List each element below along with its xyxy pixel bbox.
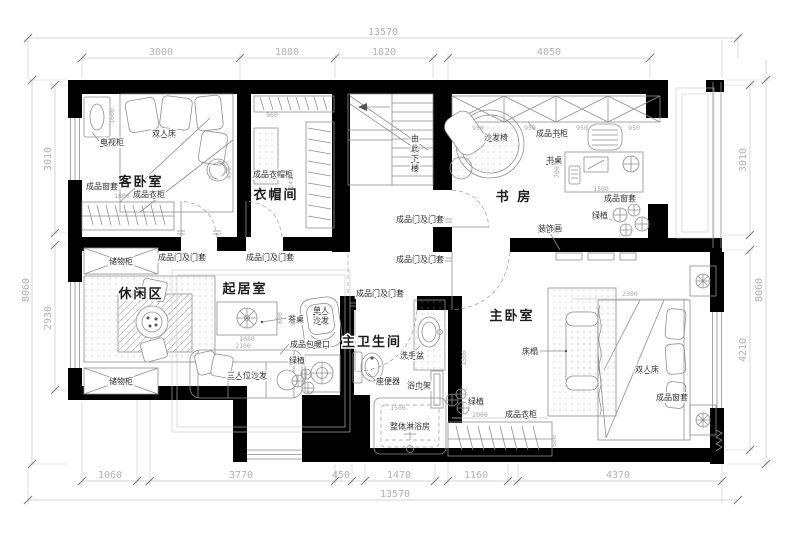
room-label-guest-bedroom: 客卧室 <box>118 174 163 190</box>
label-sofa-chair: 沙发椅 <box>484 132 508 142</box>
decor-paintings <box>556 253 636 260</box>
stair-note-char: 下 <box>411 154 419 163</box>
label-radiator-cover: 成品包暖口 <box>290 339 330 349</box>
wall-cloak-stair <box>332 80 350 252</box>
bay-window-inner <box>682 94 708 232</box>
floor-plan-page: 客卧室衣帽间书 房休闲区起居室主卫生间主卧室 双人床电视柜成品窗套成品衣柜成品衣… <box>0 0 800 559</box>
dims_outer-text: 1060 <box>98 470 122 481</box>
dims_inner-text: 1500 <box>593 185 609 193</box>
door-swing-study <box>452 190 489 227</box>
label-bed-bench: 床榻 <box>522 346 538 356</box>
label-double-bed-master: 双人床 <box>635 364 659 374</box>
label-plant-master: 绿植 <box>468 396 484 406</box>
dim-bottom-overall: 13570 <box>380 489 410 500</box>
label-tv-cabinet: 电视柜 <box>100 137 124 147</box>
dims_inner-text: 2100 <box>235 342 251 350</box>
window-living-bottom <box>247 450 302 459</box>
dims_inner-text: 1800 <box>114 192 130 200</box>
cloak-rack-side <box>306 122 334 228</box>
room-label-leisure-area: 休闲区 <box>117 286 163 302</box>
label-door-bathroom: 成品门及门套 <box>356 288 404 298</box>
label-storage-bottom: 储物柜 <box>109 376 133 386</box>
dims_outer-text: 3010 <box>738 148 749 172</box>
dims_outer-text: 1470 <box>387 470 411 481</box>
dims_outer-text: 4050 <box>537 47 561 58</box>
dims_outer-text: 2930 <box>43 306 54 330</box>
label-three-seat-sofa: 三人位沙发 <box>227 370 267 380</box>
plant-study <box>613 204 649 236</box>
wall-master-north <box>510 238 722 252</box>
dims_inner-text: 450 <box>225 167 233 179</box>
stair-note-char: 此 <box>411 143 419 153</box>
dims_inner-text: 950 <box>576 124 588 132</box>
dims_inner-text: 950 <box>524 124 536 132</box>
tea-table <box>217 302 277 335</box>
wall-study-se <box>648 204 668 238</box>
dims_inner-text: 1500 <box>460 350 468 366</box>
dims_inner-text: 900 <box>289 314 297 326</box>
dims_inner-text: 960 <box>266 111 278 119</box>
desk-chair <box>588 124 622 150</box>
wall-top <box>68 80 668 94</box>
dims_inner-text: 950 <box>472 124 484 132</box>
dims_inner-text: 2410 <box>287 173 295 189</box>
dims_inner-text: 700 <box>553 166 561 178</box>
dims_outer-text: 1820 <box>372 47 396 58</box>
dims_outer-text: 1880 <box>275 47 299 58</box>
label-door-cloak: 成品门及门套 <box>246 252 294 262</box>
label-door-master: 成品门及门套 <box>396 254 444 264</box>
label-single-sofa-2: 沙发 <box>313 315 329 325</box>
label-towel-rack: 浴巾架 <box>407 380 431 390</box>
label-window-casing-master: 成品窗套 <box>656 392 688 402</box>
dim-top-overall: 13570 <box>368 27 398 38</box>
wall-bottom <box>370 448 722 462</box>
dims_inner-text: 2000 <box>472 411 488 419</box>
label-plant-living: 绿植 <box>289 355 305 365</box>
label-wardrobe-guest: 成品衣柜 <box>133 189 165 199</box>
wall-guest-south-2 <box>217 237 246 251</box>
dims_outer-text: 8060 <box>21 278 32 302</box>
wall-left-1 <box>68 80 82 118</box>
dims_inner-text: 2300 <box>622 290 638 298</box>
window-master-east <box>713 312 722 408</box>
label-door-study: 成品门及门套 <box>396 214 444 224</box>
dims_outer-text: 3770 <box>229 470 253 481</box>
windows <box>71 82 723 459</box>
floor-plan-canvas: 客卧室衣帽间书 房休闲区起居室主卫生间主卧室 双人床电视柜成品窗套成品衣柜成品衣… <box>0 0 800 559</box>
staircase <box>348 94 433 185</box>
dims_inner-text: 600 <box>550 435 558 447</box>
label-wash-basin: 洗手盆 <box>400 350 424 360</box>
dims_inner-text: 950 <box>628 124 640 132</box>
dims_outer-text: 3010 <box>43 147 54 171</box>
wall-master-east-top <box>710 252 724 312</box>
tv-cabinet <box>84 97 110 137</box>
towel-rack <box>431 371 443 408</box>
window-leisure-left <box>71 282 80 368</box>
stair-note-char: 由 <box>411 133 419 143</box>
label-wardrobe-master: 成品衣柜 <box>505 409 537 419</box>
dims_inner-text: 600 <box>276 312 284 324</box>
label-plant-study: 绿植 <box>592 210 608 220</box>
wall-stair-east-lower <box>433 227 452 252</box>
label-single-sofa-1: 单人 <box>313 305 329 315</box>
dims_outer-text: 3000 <box>149 47 173 58</box>
label-door-guest: 成品门及门套 <box>158 252 206 262</box>
room-label-living-room: 起居室 <box>221 281 267 297</box>
dims_outer-text: 450 <box>332 470 350 481</box>
guest-wardrobe <box>82 202 174 230</box>
door-swing-guest <box>181 201 217 237</box>
wall-left-2 <box>68 180 82 282</box>
round-sofa-chair <box>441 107 524 179</box>
leader-dot-bench <box>565 350 567 352</box>
wall-guest-south-3 <box>283 237 332 251</box>
dims_outer-text: 4210 <box>738 338 749 362</box>
label-bookcase: 成品书柜 <box>536 128 568 138</box>
room-label-master-bedroom: 主卧室 <box>489 308 534 324</box>
label-double-bed-guest: 双人床 <box>152 128 176 138</box>
label-decor-painting: 装饰画 <box>538 223 562 233</box>
door-swing-cloak <box>246 201 282 237</box>
wall-guest-cloak-divider <box>237 80 251 237</box>
dims_outer-text: 4370 <box>606 470 630 481</box>
label-window-casing-guest: 成品窗套 <box>86 181 118 191</box>
label-window-casing-study: 成品窗套 <box>604 193 636 203</box>
stair-note-char: 楼 <box>411 163 419 173</box>
room-label-study: 书 房 <box>496 189 533 205</box>
cloak-rack-top <box>254 96 334 112</box>
dims_inner-text: 1600 <box>108 108 116 124</box>
leader-dot-tea-table <box>261 321 263 323</box>
label-toilet: 座便器 <box>376 376 400 386</box>
dims_outer-text: 1160 <box>464 470 488 481</box>
label-shower-cabin: 整体淋浴房 <box>390 421 430 431</box>
room-label-master-bathroom: 主卫生间 <box>342 334 402 350</box>
wall-step-left <box>233 398 247 462</box>
label-storage-top: 储物柜 <box>109 256 133 266</box>
dims_inner-text: 1500 <box>390 404 406 412</box>
dims_outer-text: 8060 <box>754 278 765 302</box>
wall-mass-bath-west <box>302 395 370 462</box>
label-desk: 书桌 <box>546 155 562 165</box>
side-table <box>305 355 340 392</box>
window-guest-left <box>71 118 80 180</box>
bed-bench <box>566 312 598 390</box>
